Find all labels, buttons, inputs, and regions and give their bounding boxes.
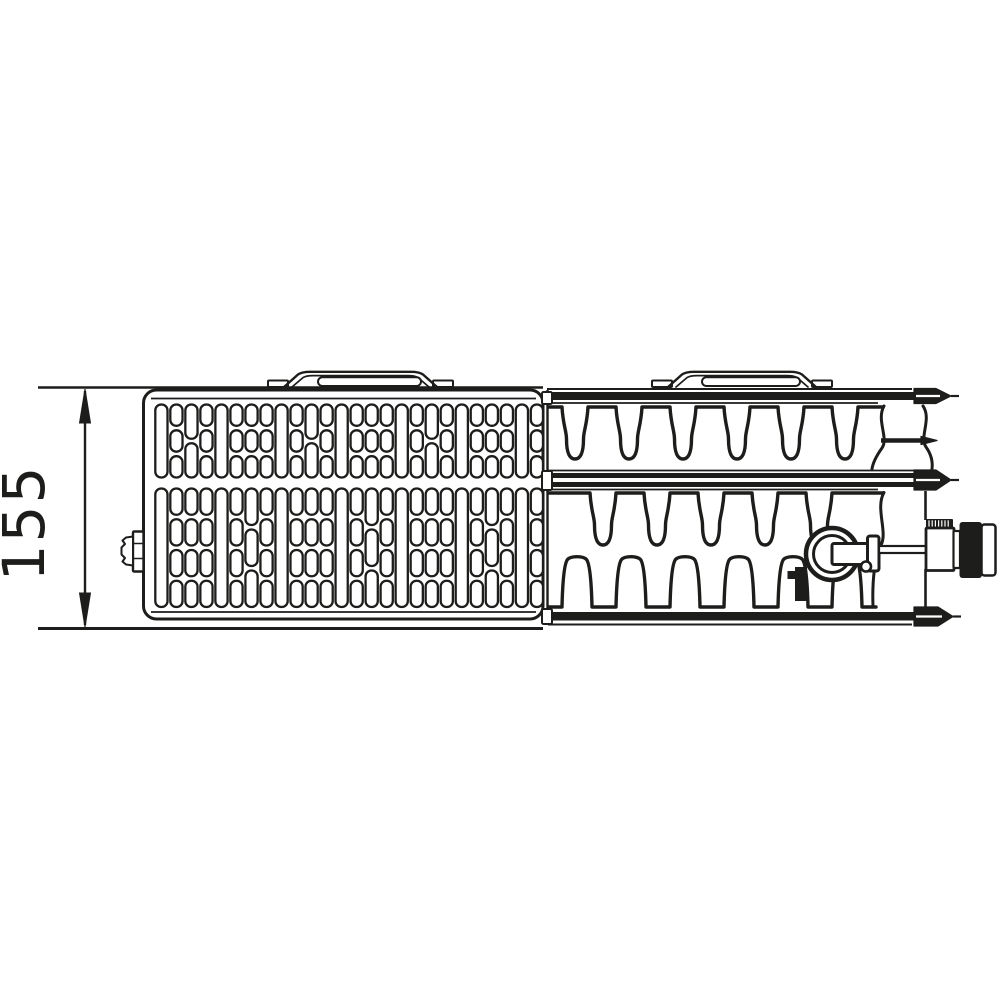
arrow-down-icon [80,593,91,627]
mounting-tabs [268,372,832,387]
top-grille [144,390,544,619]
valve-connection [926,519,996,578]
depth-dimension: 155 [0,389,91,627]
bleed-valve [122,532,144,572]
radiator-technical-drawing: 155 [0,0,1000,1000]
dimension-label: 155 [0,465,58,582]
drawing-canvas: 155 [0,0,1000,1000]
arrow-up-icon [80,389,91,423]
